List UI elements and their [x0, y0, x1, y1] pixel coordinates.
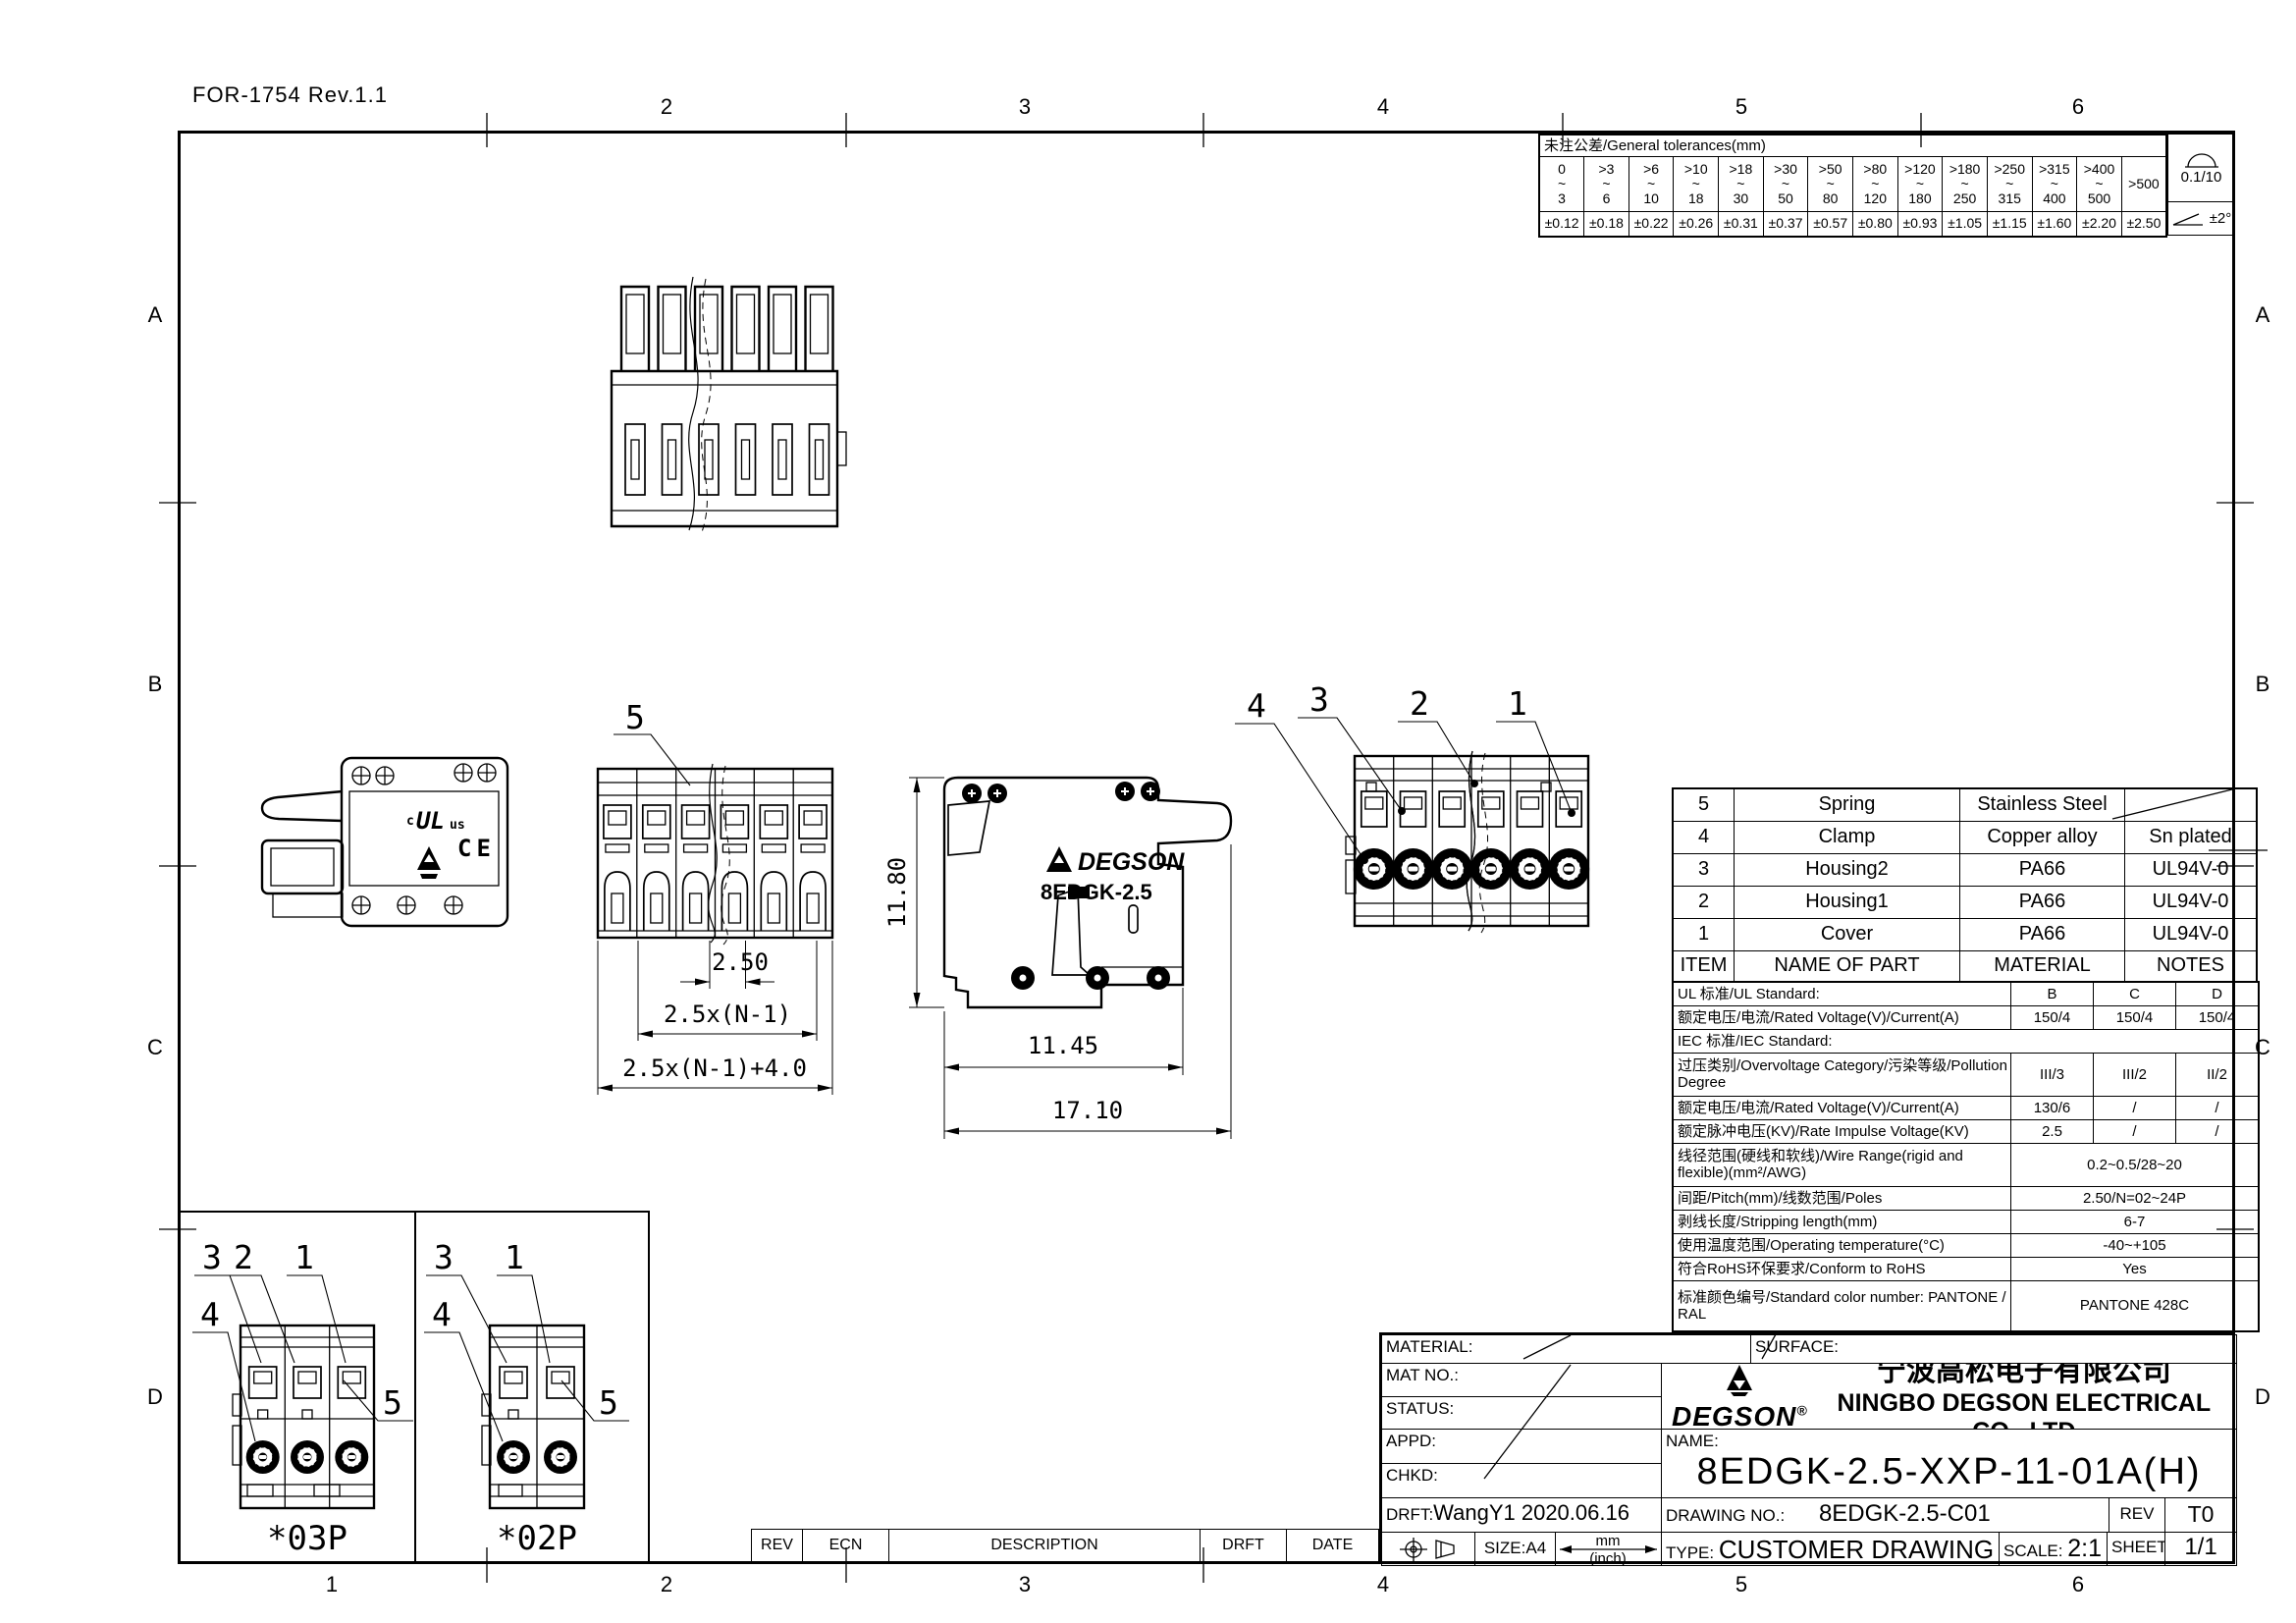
- view-top-plan: [612, 277, 846, 532]
- svg-text:us: us: [450, 818, 465, 833]
- dim-pitch: 2.50: [680, 941, 774, 989]
- svg-text:11.80: 11.80: [883, 857, 911, 928]
- callout-4: 4: [432, 1295, 452, 1333]
- svg-text:17.10: 17.10: [1052, 1097, 1123, 1124]
- degson-logo-mark: [1046, 846, 1072, 872]
- callout-1: 1: [505, 1238, 524, 1276]
- degson-logo-mark: [417, 846, 441, 879]
- callout-4: 4: [200, 1295, 220, 1333]
- callout-3: 3: [202, 1238, 222, 1276]
- callouts: 3 1 4 5: [424, 1238, 629, 1441]
- dim-height: 11.80: [883, 778, 944, 1007]
- view-02p: 3 1 4 5 *02P: [424, 1238, 629, 1558]
- svg-text:2.5x(N-1)+4.0: 2.5x(N-1)+4.0: [622, 1055, 807, 1082]
- variant-label-03p: *03P: [267, 1519, 347, 1558]
- callouts: 4 3 2 1: [1235, 680, 1575, 864]
- callout-5: 5: [625, 698, 645, 736]
- svg-text:UL: UL: [416, 807, 445, 835]
- ul-mark: c UL us: [406, 807, 465, 835]
- callout-5: 5: [599, 1383, 618, 1422]
- svg-text:2.5x(N-1): 2.5x(N-1): [664, 1001, 791, 1028]
- view-left-side: c UL us CE: [262, 758, 507, 926]
- drawing-sheet: FOR-1754 Rev.1.1 2 3 4 5 6 1 2 3 4 5 6 A…: [0, 0, 2296, 1623]
- side-model: 8EDGK-2.5: [1041, 880, 1152, 904]
- empty-value-slashes: [1484, 789, 2268, 1479]
- callout-5: 5: [383, 1383, 402, 1422]
- callout-2: 2: [234, 1238, 253, 1276]
- callout-3: 3: [434, 1238, 454, 1276]
- svg-text:c: c: [406, 814, 414, 829]
- callout-1: 1: [294, 1238, 314, 1276]
- view-right-rear: 4 3 2 1: [1235, 680, 1589, 933]
- callout-4: 4: [1247, 686, 1266, 725]
- view-03p: 3 2 1 4 5 *03P: [192, 1238, 413, 1558]
- view-front: 5 2.50 2.5x(N-1) 2.5x(N-1)+4.0: [598, 698, 832, 1095]
- dim-inner-width: 11.45: [944, 988, 1183, 1075]
- callout-1: 1: [1508, 684, 1527, 723]
- callout-2: 2: [1410, 684, 1429, 723]
- callout-3: 3: [1309, 680, 1329, 719]
- variant-label-02p: *02P: [497, 1519, 577, 1558]
- svg-text:2.50: 2.50: [712, 948, 769, 976]
- side-brand: DEGSON: [1078, 848, 1185, 876]
- view-side: DEGSON 8EDGK-2.5 11.80 11.45 17.10: [883, 778, 1231, 1139]
- ce-mark: CE: [457, 835, 496, 862]
- wire-port-icon: [246, 1440, 369, 1474]
- drawing-views: c UL us CE: [0, 0, 2296, 1623]
- svg-text:11.45: 11.45: [1028, 1032, 1098, 1059]
